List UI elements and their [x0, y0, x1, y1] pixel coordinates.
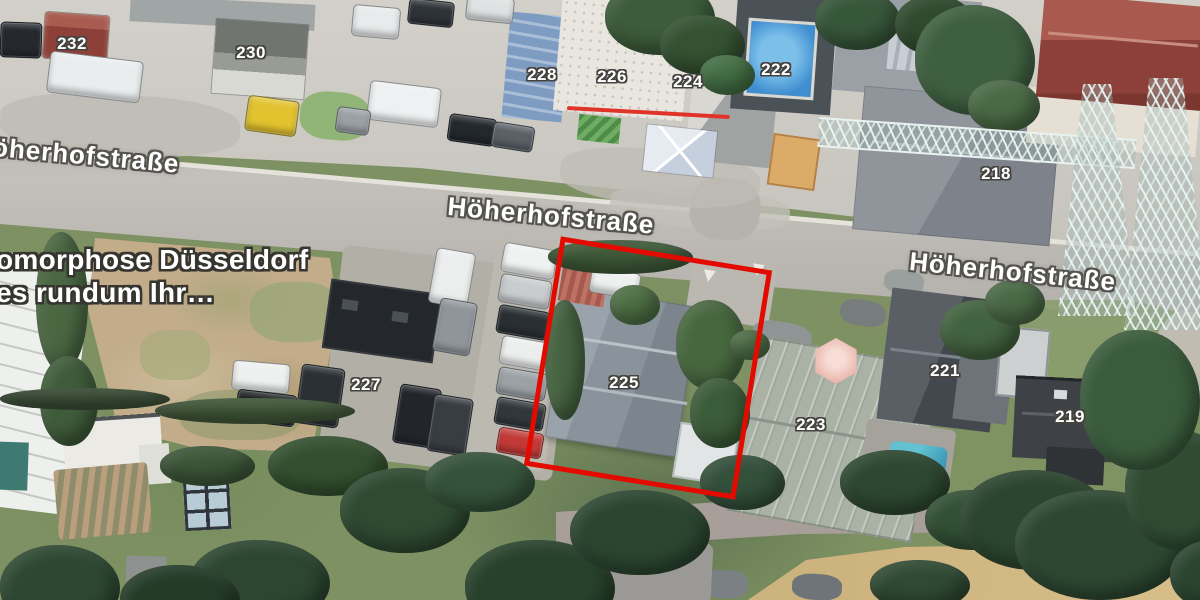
satellite-map[interactable]: HöherhofstraßeHöherhofstraßeHöherhofstra…	[0, 0, 1200, 600]
roof-dot-219	[1054, 390, 1067, 400]
car	[244, 95, 301, 138]
house-number-223[interactable]: 223	[796, 415, 826, 435]
house-number-222[interactable]: 222	[761, 60, 791, 80]
terrain-patch	[791, 572, 843, 600]
green-tarp	[577, 114, 621, 144]
tree	[968, 80, 1040, 132]
roof-vent	[341, 299, 358, 311]
car	[351, 4, 402, 40]
house-number-219[interactable]: 219	[1055, 407, 1085, 427]
house-number-228[interactable]: 228	[527, 65, 557, 85]
roof-vent	[391, 311, 408, 323]
house-number-226[interactable]: 226	[597, 67, 627, 87]
house-number-230[interactable]: 230	[236, 43, 266, 63]
canopy-tent-224	[643, 124, 717, 177]
house-number-224[interactable]: 224	[673, 72, 703, 92]
garden-beds	[53, 462, 153, 540]
tree	[570, 490, 710, 575]
terrain-patch	[140, 330, 210, 380]
house-number-227[interactable]: 227	[351, 375, 381, 395]
car	[334, 106, 371, 136]
shed-teal	[0, 441, 29, 490]
place-label-line-1[interactable]: omorphose Düsseldorf	[0, 244, 308, 276]
tree	[0, 545, 120, 600]
car	[407, 0, 455, 28]
tree	[0, 388, 170, 410]
house-number-218[interactable]: 218	[981, 164, 1011, 184]
car	[366, 80, 442, 128]
tree	[700, 55, 755, 95]
car	[0, 21, 43, 58]
place-label-line-2[interactable]: es rundum Ihr…	[0, 277, 215, 309]
pool-222	[743, 18, 818, 101]
shed-tan-222	[767, 133, 822, 191]
tree	[1080, 330, 1200, 470]
house-number-225[interactable]: 225	[609, 373, 639, 393]
plot-225-highlight-outline	[524, 236, 772, 499]
tree	[160, 446, 255, 486]
house-number-232[interactable]: 232	[57, 34, 87, 54]
tree	[155, 398, 355, 424]
house-number-221[interactable]: 221	[930, 361, 960, 381]
tree	[425, 452, 535, 512]
